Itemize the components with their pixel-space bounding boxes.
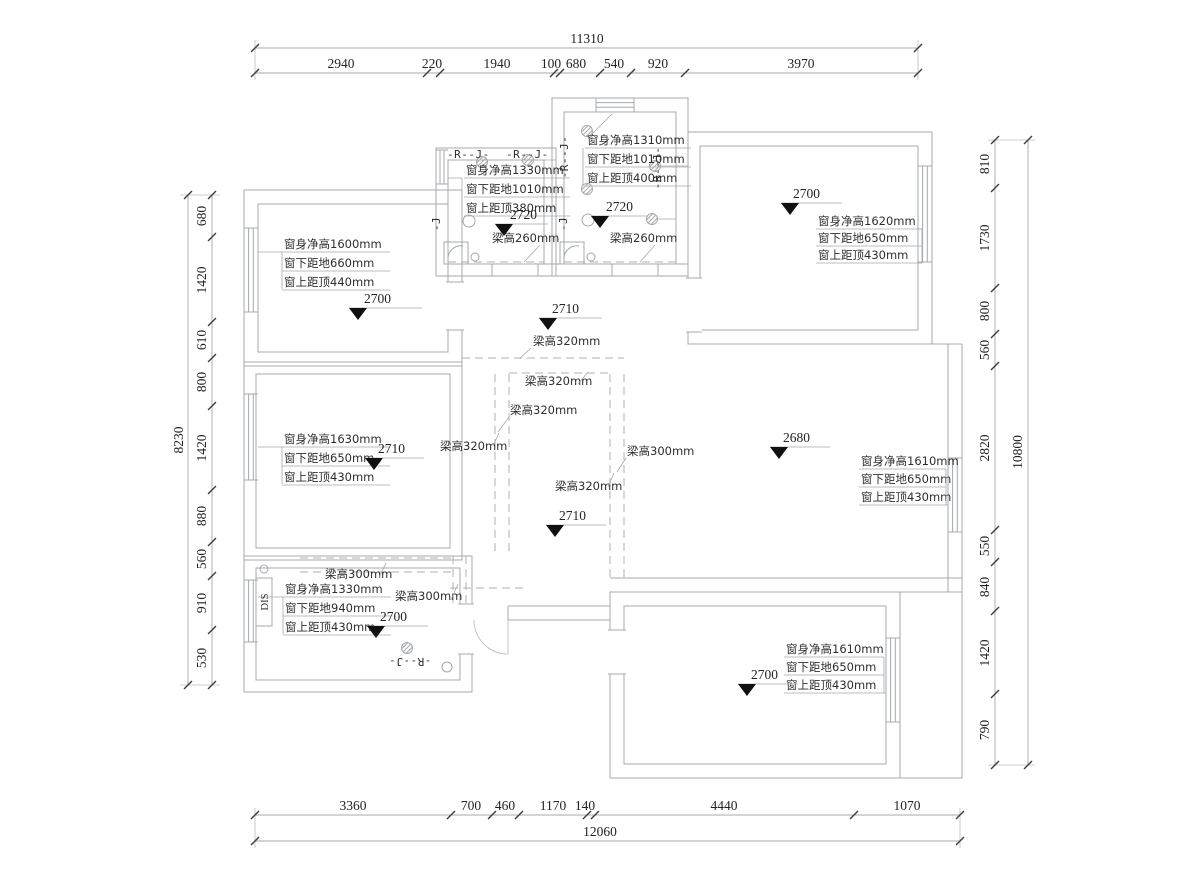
window-ann-line: 窗身净高1330mm [285,582,383,596]
level-bath-right: 2720 [591,199,648,228]
beam-label: 梁高320mm [510,403,577,417]
pipe-circle [442,662,452,672]
toilet-circle [463,215,475,227]
level-value: 2700 [751,667,778,682]
dim-bottom-seg: 700 [461,798,482,813]
level-hall: 2710 [539,301,602,330]
window-ann-line: 窗身净高1310mm [587,133,685,147]
dim-top-seg: 680 [566,56,587,71]
dim-right-seg: 790 [977,720,992,741]
dim-bottom-seg: 1070 [894,798,921,813]
dim-right-seg: 1420 [977,639,992,666]
window-ann-line: 窗身净高1610mm [786,642,884,656]
window-ann-line: 窗上距顶430mm [285,620,375,634]
door-arc [474,620,508,654]
window-ann-line: 窗上距顶430mm [786,678,876,692]
dim-top-seg: 2940 [328,56,355,71]
dim-left-seg: 1420 [194,266,209,293]
drain-icon [582,184,593,195]
dim-right-seg: 840 [977,577,992,598]
dim-top-seg: 100 [541,56,562,71]
rj-label-vertical: -R--J- [651,147,664,190]
window-ann-line: 窗下距地650mm [861,472,951,486]
level-value: 2700 [380,609,407,624]
dim-bottom-seg: 460 [495,798,516,813]
level-value: 2700 [793,186,820,201]
window-ann-line: 窗身净高1330mm [466,163,564,177]
rj-label-short: -J [557,217,570,231]
dim-left-seg: 880 [194,506,209,527]
level-value: 2710 [559,508,586,523]
level-value: 2710 [378,441,405,456]
annotation-room-bottom-right: 窗身净高1610mm 窗下距地650mm 窗上距顶430mm [784,642,886,693]
beam-label: 梁高320mm [525,374,592,388]
window-ann-line: 窗上距顶430mm [861,490,951,504]
level-value: 2680 [783,430,810,445]
dim-top-seg: 220 [422,56,443,71]
dim-bottom-total: 12060 [583,824,617,839]
window-ann-line: 窗下距地1010mm [587,152,685,166]
level-room-bottom-left: 2700 [367,609,428,638]
beam-label: 梁高300mm [395,589,462,603]
floor-plan-page: 11310 2940 220 1940 100 680 540 920 3970… [0,0,1200,889]
rj-label-flipped: -R--J- [389,655,432,668]
dis-mark: DIS [256,578,272,626]
level-corridor: 2710 [546,508,606,537]
beam-label: 梁高320mm [440,439,507,453]
dim-top-seg: 540 [604,56,625,71]
window-ann-line: 窗身净高1610mm [861,454,959,468]
dim-top: 11310 2940 220 1940 100 680 540 920 3970 [251,31,922,80]
beam-label: 梁高260mm [610,231,677,245]
dim-top-seg: 920 [648,56,669,71]
annotation-bath-right: 窗身净高1310mm 窗下距地1010mm 窗上距顶400mm [583,114,691,186]
dim-left-seg: 610 [194,330,209,351]
beam-labels: 梁高260mm 梁高260mm 梁高320mm 梁高320mm 梁高320mm … [325,231,694,603]
dim-bottom-seg: 140 [575,798,596,813]
annotation-living: 窗身净高1610mm 窗下距地650mm 窗上距顶430mm [859,454,959,505]
pipe-circle [587,253,595,261]
annotation-room-top-right: 窗身净高1620mm 窗下距地650mm 窗上距顶430mm [816,214,922,263]
dim-left-total: 8230 [171,426,186,453]
pipe-circle [260,565,268,573]
level-value: 2720 [606,199,633,214]
beam-label: 梁高320mm [533,334,600,348]
drain-icon [647,214,658,225]
rj-label: -R--J- [447,148,490,161]
rj-label-vertical: -R--J- [558,136,571,179]
window-ann-line: 窗下距地940mm [285,601,375,615]
beam-label: 梁高320mm [555,479,622,493]
annotation-bath-left: 窗身净高1330mm 窗下距地1010mm 窗上距顶380mm [448,163,570,216]
dim-right-seg: 1730 [977,224,992,251]
dim-left-seg: 680 [194,206,209,227]
dim-right-seg: 800 [977,301,992,322]
beam-label: 梁高260mm [492,231,559,245]
dim-left-seg: 1420 [194,434,209,461]
window-ann-line: 窗下距地650mm [786,660,876,674]
window-ann-line: 窗下距地650mm [818,231,908,245]
window-ann-line: 窗身净高1630mm [284,432,382,446]
beam-label: 梁高300mm [325,567,392,581]
level-value: 2700 [364,291,391,306]
dim-right: 10800 810 1730 800 560 2820 550 840 1420… [977,136,1035,769]
rj-label-short: -J [430,217,443,231]
window-ann-line: 窗下距地660mm [284,256,374,270]
level-value: 2710 [552,301,579,316]
dim-bottom: 3360 700 460 1170 140 4440 1070 12060 [251,798,964,848]
window-ann-line: 窗身净高1600mm [284,237,382,251]
dim-top-seg: 3970 [788,56,815,71]
dim-right-total: 10800 [1010,435,1025,469]
dis-label: DIS [260,593,271,610]
dim-left: 8230 680 1420 610 800 1420 880 560 910 5… [171,191,220,689]
level-room-top-right: 2700 [781,186,842,215]
window-ann-line: 窗下距地1010mm [466,182,564,196]
level-value: 2720 [510,207,537,222]
floor-plan-canvas: 11310 2940 220 1940 100 680 540 920 3970… [0,0,1200,889]
pipe-circle [471,253,479,261]
dim-top-total: 11310 [570,31,603,46]
window-ann-line: 窗身净高1620mm [818,214,916,228]
dim-right-seg: 810 [977,154,992,175]
level-living: 2680 [770,430,830,459]
beam-label: 梁高300mm [627,444,694,458]
dim-top-seg: 1940 [484,56,511,71]
dim-bottom-seg: 3360 [340,798,367,813]
dim-left-seg: 800 [194,372,209,393]
dim-bottom-seg: 1170 [540,798,567,813]
dim-right-seg: 550 [977,536,992,557]
annotation-bedroom-top-left: 窗身净高1600mm 窗下距地660mm 窗上距顶440mm [258,237,390,290]
window-ann-line: 窗上距顶440mm [284,275,374,289]
rj-label: -R--J- [506,148,549,161]
dim-right-seg: 2820 [977,434,992,461]
dim-right-seg: 560 [977,340,992,361]
window-ann-line: 窗上距顶430mm [818,248,908,262]
window-ann-line: 窗下距地650mm [284,451,374,465]
level-bedroom-top-left: 2700 [349,291,422,320]
dim-left-seg: 910 [194,593,209,614]
dim-left-seg: 530 [194,648,209,669]
window-ann-line: 窗上距顶430mm [284,470,374,484]
dim-bottom-seg: 4440 [711,798,738,813]
dim-left-seg: 560 [194,549,209,570]
drain-icon [402,643,413,654]
